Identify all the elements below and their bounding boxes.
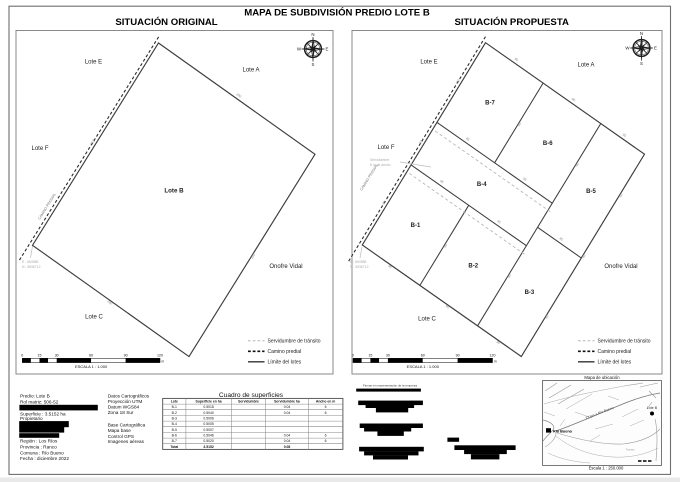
svg-text:Comuna : Río Bueno: Comuna : Río Bueno [20,450,64,455]
svg-text:30: 30 [386,354,390,358]
svg-text:0.5007: 0.5007 [203,428,213,432]
svg-text:Lote B: Lote B [164,188,184,195]
svg-text:Firman en representación de la: Firman en representación de la empresa [363,383,417,387]
svg-text:m: m [494,360,497,364]
svg-text:B-2: B-2 [468,264,478,270]
svg-text:N : 5536712: N : 5536712 [22,265,41,269]
svg-text:90: 90 [124,354,128,358]
svg-text:Mapa de ubicación: Mapa de ubicación [584,375,620,380]
svg-text:N : 5536712: N : 5536712 [350,265,369,269]
svg-text:Servidumbre: Servidumbre [370,158,389,162]
svg-text:Servidumbre ha: Servidumbre ha [274,400,300,404]
svg-text:30: 30 [55,354,59,358]
svg-text:Límite del lotes: Límite del lotes [268,360,302,366]
svg-text:0: 0 [352,354,354,358]
svg-text:ESCALA 1 : 1.000: ESCALA 1 : 1.000 [75,364,108,369]
svg-text:E: E [326,47,329,52]
svg-text:B-6: B-6 [172,434,177,438]
svg-text:B-7: B-7 [172,439,177,443]
svg-text:Onofre Vidal: Onofre Vidal [269,264,302,270]
svg-text:Lote F: Lote F [377,145,394,151]
svg-text:SITUACIÓN ORIGINAL: SITUACIÓN ORIGINAL [115,16,217,28]
svg-text:0.5040: 0.5040 [203,411,213,415]
svg-text:0.04: 0.04 [284,411,291,415]
svg-text:Datum WGS84: Datum WGS84 [108,405,140,410]
svg-text:Lote C: Lote C [85,315,103,321]
svg-text:Lote F: Lote F [31,146,48,152]
svg-text:6: 6 [325,434,327,438]
svg-text:MAPA DE SUBDIVISIÓN PREDIO LOT: MAPA DE SUBDIVISIÓN PREDIO LOTE B [244,7,430,19]
svg-text:Lote E: Lote E [420,60,437,66]
svg-text:Rol matriz: 506-52: Rol matriz: 506-52 [20,399,59,404]
svg-text:m: m [162,360,165,364]
svg-text:N: N [640,31,643,36]
svg-text:Lote C: Lote C [418,317,436,323]
svg-text:Base Cartográfica: Base Cartográfica [108,423,146,428]
svg-text:Datos Cartográficos: Datos Cartográficos [108,393,150,398]
svg-text:Escala 1 : 250.000: Escala 1 : 250.000 [589,465,624,470]
svg-text:0.08: 0.08 [284,445,291,449]
svg-text:Lote E: Lote E [85,60,102,66]
svg-text:120: 120 [157,354,163,358]
svg-text:6: 6 [325,439,327,443]
svg-text:S: S [312,62,315,67]
svg-text:0.5006: 0.5006 [203,417,213,421]
svg-text:S: S [640,61,643,66]
svg-text:B-4: B-4 [172,422,177,426]
svg-text:Camino predial: Camino predial [598,349,632,355]
svg-text:ESCALA 1 : 1.000: ESCALA 1 : 1.000 [407,364,440,369]
svg-text:Provincia : Ranco: Provincia : Ranco [20,444,57,449]
svg-text:Camino predial: Camino predial [268,349,302,355]
svg-text:0.5046: 0.5046 [203,434,213,438]
svg-text:3.5152: 3.5152 [203,445,213,449]
svg-text:SITUACIÓN PROPUESTA: SITUACIÓN PROPUESTA [454,16,568,28]
svg-text:B-1: B-1 [411,223,421,229]
svg-text:15: 15 [368,354,372,358]
svg-text:Fecha : diciembre 2022: Fecha : diciembre 2022 [20,456,69,461]
svg-text:B-4: B-4 [477,182,487,188]
svg-text:90: 90 [456,354,460,358]
svg-text:Río Bueno: Río Bueno [553,429,573,433]
svg-text:Predio: Lote B: Predio: Lote B [20,394,50,399]
svg-text:Cuadro de superficies: Cuadro de superficies [219,392,284,399]
svg-text:Trumao: Trumao [626,448,635,452]
svg-text:B-7: B-7 [485,101,495,107]
svg-text:Lote A: Lote A [577,63,594,69]
svg-text:0: 0 [21,354,23,358]
svg-text:B-5: B-5 [172,428,177,432]
svg-text:B-5: B-5 [586,189,596,195]
svg-text:Onofre Vidal: Onofre Vidal [604,264,637,270]
svg-text:B-6: B-6 [543,141,553,147]
svg-text:E : 654985: E : 654985 [350,260,367,264]
svg-text:Total: Total [170,445,178,449]
svg-text:Superficie en ha: Superficie en ha [195,400,221,404]
svg-text:0.04: 0.04 [284,439,291,443]
svg-text:120: 120 [490,354,496,358]
svg-text:60: 60 [421,354,425,358]
svg-text:0.5018: 0.5018 [203,405,213,409]
svg-text:Imagenes aéreas: Imagenes aéreas [108,439,145,444]
svg-text:0.5020: 0.5020 [203,439,213,443]
svg-text:Servidumbre de tránsito: Servidumbre de tránsito [268,339,321,345]
svg-text:E : 654985: E : 654985 [22,260,39,264]
svg-text:0.04: 0.04 [284,405,291,409]
svg-text:15: 15 [38,354,42,358]
svg-text:B-2: B-2 [172,411,177,415]
svg-text:N: N [311,32,314,37]
svg-text:6: 6 [325,405,327,409]
svg-text:B-3: B-3 [172,417,177,421]
svg-text:Límite del lotes: Límite del lotes [598,360,632,366]
svg-text:Lote B: Lote B [647,406,658,410]
svg-text:Lote: Lote [171,400,178,404]
svg-text:6: 6 [325,411,327,415]
svg-text:Servidumbre de tránsito: Servidumbre de tránsito [598,339,651,345]
svg-text:0.04: 0.04 [284,434,291,438]
svg-text:B-1: B-1 [172,405,177,409]
svg-text:60: 60 [89,354,93,358]
svg-text:Servidumbre: Servidumbre [238,400,259,404]
svg-text:Lote A: Lote A [242,68,259,74]
svg-text:Propietario: Propietario [20,416,43,421]
svg-text:0.5005: 0.5005 [203,422,213,426]
svg-text:E: E [654,46,657,51]
svg-text:Ancho en m: Ancho en m [316,400,335,404]
svg-text:B-3: B-3 [525,290,535,296]
svg-text:Proyección UTM: Proyección UTM [108,399,143,404]
svg-text:Mapa base: Mapa base [108,428,132,433]
svg-text:Zona 18 Sur: Zona 18 Sur [108,410,134,415]
svg-text:Región : Los Ríos: Región : Los Ríos [20,438,58,443]
